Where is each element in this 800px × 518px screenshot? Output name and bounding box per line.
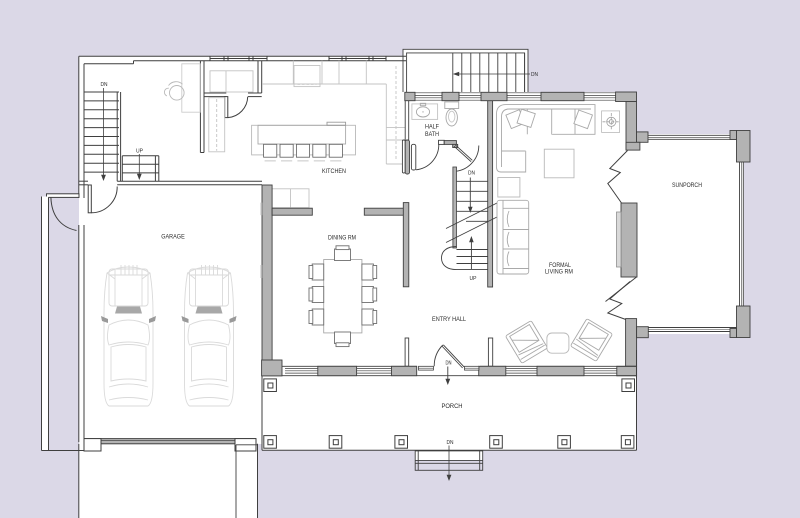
svg-text:DN: DN xyxy=(531,72,538,78)
svg-text:HALF: HALF xyxy=(425,123,439,130)
svg-text:DINING RM: DINING RM xyxy=(328,235,356,242)
svg-text:LIVING RM: LIVING RM xyxy=(545,268,573,275)
svg-text:DN: DN xyxy=(468,171,475,177)
svg-text:UP: UP xyxy=(470,276,478,282)
svg-text:SUNPORCH: SUNPORCH xyxy=(672,182,702,189)
svg-text:PORCH: PORCH xyxy=(442,403,463,410)
svg-text:UP: UP xyxy=(136,148,144,154)
svg-text:GARAGE: GARAGE xyxy=(161,234,185,241)
svg-text:DN: DN xyxy=(447,440,454,446)
svg-text:DN: DN xyxy=(446,360,452,366)
svg-text:ENTRY HALL: ENTRY HALL xyxy=(432,316,467,323)
svg-text:BATH: BATH xyxy=(425,131,439,138)
svg-text:KITCHEN: KITCHEN xyxy=(322,168,346,175)
svg-text:DN: DN xyxy=(101,82,108,88)
